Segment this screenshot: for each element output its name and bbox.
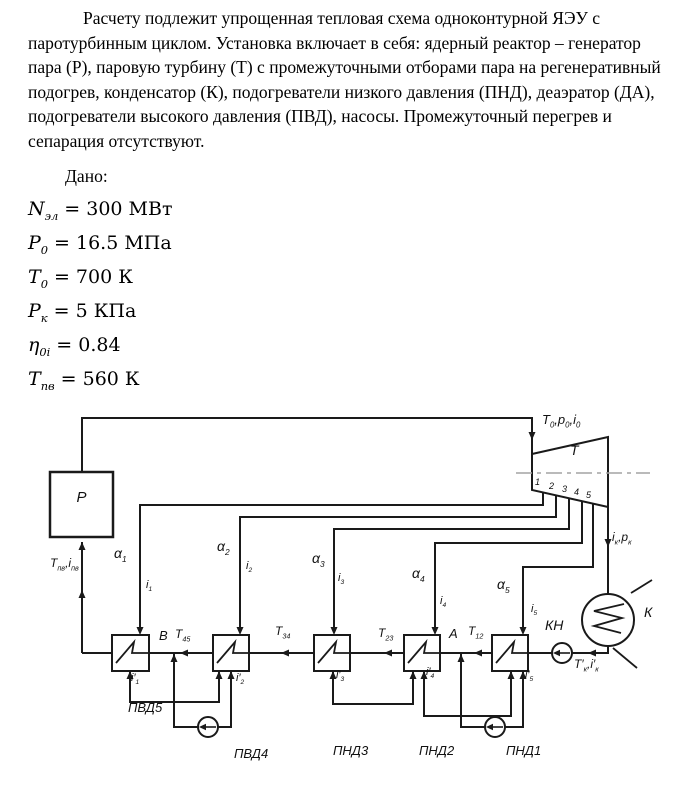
i2-label: i2: [246, 560, 252, 572]
heater-pnd1-label: ПНД1: [506, 743, 541, 758]
point-B-label: В: [159, 628, 168, 643]
i5-label: i5: [531, 603, 537, 615]
scheme-linework: [0, 0, 694, 807]
feedwater-state-label: Tпв,iпв: [50, 556, 79, 570]
main-steam-pipe: [82, 418, 532, 472]
condensate-pump-label: КН: [545, 617, 563, 633]
extraction-number-3: 3: [562, 484, 567, 494]
turbine-label: Т: [570, 442, 579, 458]
extraction-line-2: [240, 495, 556, 631]
condenser-label: К: [644, 604, 652, 620]
i3-drain-label: i′3: [336, 669, 344, 681]
extraction-number-5: 5: [586, 490, 591, 500]
drain-pnd3-pnd2: [333, 671, 413, 704]
alpha-4-label: α4: [412, 565, 425, 581]
alpha-2-label: α2: [217, 538, 230, 554]
inlet-state-label: T0,p0,i0: [542, 412, 580, 427]
temp-34-label: T34: [275, 624, 290, 638]
heater-pvd5-label: ПВД5: [128, 700, 162, 715]
condensate-pipe: [572, 646, 608, 653]
alpha-5-label: α5: [497, 576, 510, 592]
temp-45-label: T45: [175, 627, 190, 641]
alpha-3-label: α3: [312, 550, 325, 566]
extraction-number-4: 4: [574, 487, 579, 497]
i4-label: i4: [440, 595, 446, 607]
thermal-scheme-diagram: Р Т T0,p0,i0 iк,pк К КН T′к,i′к Tпв,iпв …: [0, 0, 694, 807]
extraction-number-1: 1: [535, 477, 540, 487]
extraction-line-1: [140, 492, 543, 631]
alpha-1-label: α1: [114, 545, 127, 561]
temp-23-label: T23: [378, 626, 393, 640]
condensate-state-label: T′к,i′к: [574, 657, 599, 671]
temp-12-label: T12: [468, 624, 483, 638]
exhaust-state-label: iк,pк: [612, 530, 632, 544]
extraction-number-2: 2: [549, 481, 554, 491]
document-page: Расчету подлежит упрощенная тепловая схе…: [0, 0, 694, 807]
i1-label: i1: [146, 579, 152, 591]
heater-pvd4-label: ПВД4: [234, 746, 268, 761]
i1-drain-label: i′1: [131, 672, 139, 684]
condenser-circle: [582, 594, 634, 646]
i5-drain-label: i′5: [525, 669, 533, 681]
i4-drain-label: i′4: [426, 666, 434, 678]
heater-pnd2-label: ПНД2: [419, 743, 454, 758]
point-A-label: А: [449, 626, 458, 641]
drain-pnd2-pnd1: [424, 671, 511, 716]
reactor-label: Р: [50, 489, 113, 506]
i2-drain-label: i′2: [236, 672, 244, 684]
i3-label: i3: [338, 572, 344, 584]
heater-pnd3-label: ПНД3: [333, 743, 368, 758]
